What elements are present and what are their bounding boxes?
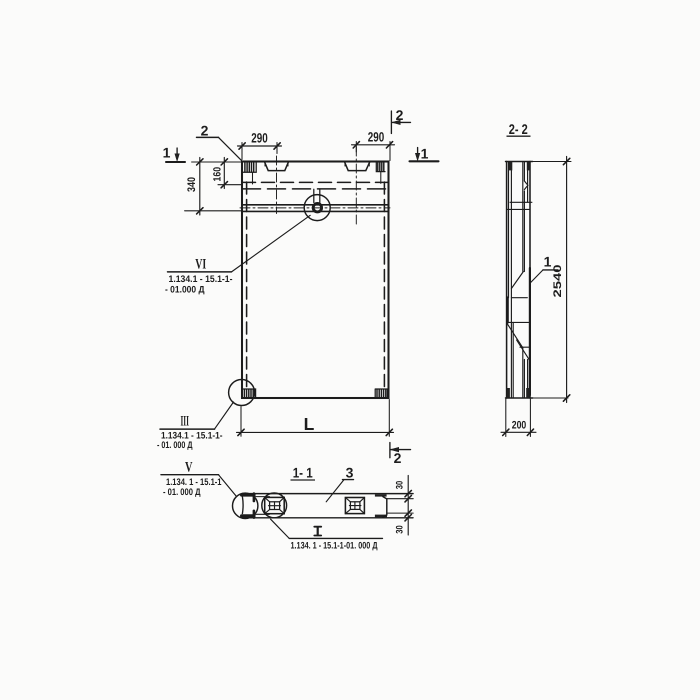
svg-text:2- 2: 2- 2 <box>509 121 528 137</box>
svg-text:2540: 2540 <box>552 265 564 298</box>
svg-text:- 01. 000 Д: - 01. 000 Д <box>163 487 201 498</box>
svg-text:200: 200 <box>512 420 527 432</box>
svg-text:III: III <box>180 414 189 430</box>
svg-text:- 01.000 Д: - 01.000 Д <box>165 285 205 296</box>
svg-text:1.134.1 - 15.1-1-: 1.134.1 - 15.1-1- <box>169 274 233 285</box>
svg-text:30: 30 <box>395 481 406 490</box>
svg-text:V: V <box>185 460 193 476</box>
svg-text:340: 340 <box>186 177 198 192</box>
svg-text:2: 2 <box>394 450 402 466</box>
svg-text:1: 1 <box>421 146 429 162</box>
svg-text:1: 1 <box>163 145 171 161</box>
svg-text:- 01. 000 Д: - 01. 000 Д <box>157 440 193 451</box>
svg-text:3: 3 <box>346 465 354 481</box>
svg-text:2: 2 <box>201 123 209 139</box>
svg-text:160: 160 <box>212 167 224 182</box>
svg-text:1.134. 1 - 15.1-1-01. 000 Д: 1.134. 1 - 15.1-1-01. 000 Д <box>291 540 378 551</box>
svg-text:VI: VI <box>195 257 206 273</box>
svg-text:1: 1 <box>544 254 552 270</box>
svg-text:L: L <box>304 414 315 434</box>
svg-text:2: 2 <box>396 107 404 123</box>
svg-text:290: 290 <box>368 130 385 145</box>
svg-text:30: 30 <box>395 525 406 534</box>
svg-text:290: 290 <box>251 131 268 146</box>
svg-text:1- 1: 1- 1 <box>293 465 313 481</box>
